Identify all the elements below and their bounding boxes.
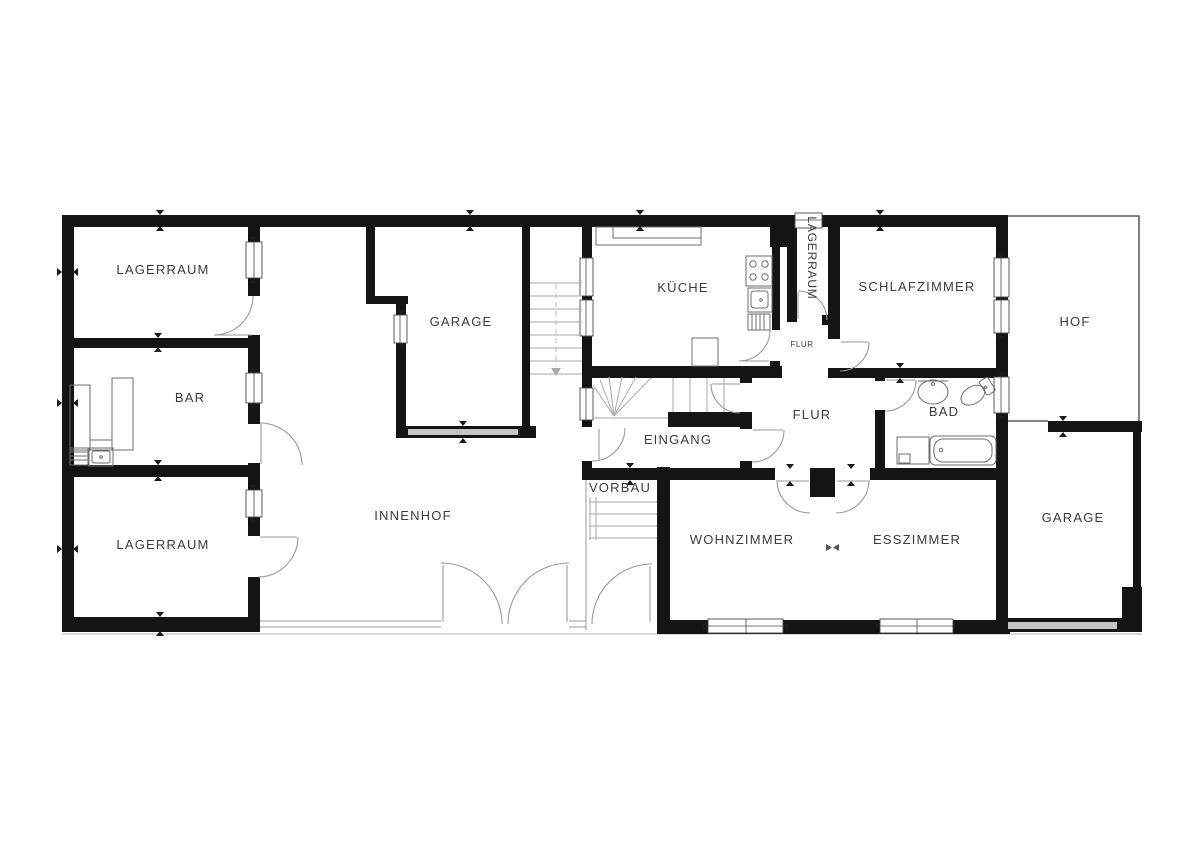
room-label-hof: HOF — [1059, 314, 1090, 329]
dimension-tick-icon — [459, 421, 467, 426]
kitchen-sink-icon — [748, 288, 772, 312]
dimension-tick-icon — [154, 333, 162, 338]
stairs — [530, 283, 724, 540]
toilet-icon — [957, 376, 996, 409]
floor-plan-page: LAGERRAUM BAR LAGERRAUM INNENHOF GARAGE … — [0, 0, 1200, 848]
dimension-tick-icon — [57, 268, 62, 276]
room-label-lagerraum-side: LAGERRAUM — [805, 216, 819, 299]
dimension-tick-icon — [466, 210, 474, 215]
dimension-tick-icon — [1059, 432, 1067, 437]
dimension-tick-icon — [156, 612, 164, 617]
room-divider-marker-icon — [826, 544, 839, 551]
washbasin-icon — [918, 380, 948, 404]
stove-icon — [746, 256, 772, 286]
room-label-innenhof: INNENHOF — [374, 508, 452, 523]
dimension-tick-icon — [847, 464, 855, 469]
bar-counter — [70, 378, 133, 450]
room-label-bar: BAR — [175, 390, 205, 405]
dimension-tick-icon — [847, 481, 855, 486]
garage-bottom-door — [1008, 622, 1117, 629]
garage-doors — [408, 429, 1117, 629]
room-label-eingang: EINGANG — [644, 432, 712, 447]
garage-top-door — [408, 429, 518, 435]
room-label-bad: BAD — [929, 404, 959, 419]
room-label-lagerraum-top: LAGERRAUM — [116, 262, 209, 277]
dimension-tick-icon — [786, 464, 794, 469]
dimension-tick-icon — [876, 210, 884, 215]
room-label-garage-top: GARAGE — [430, 314, 493, 329]
dimension-tick-icon — [626, 463, 634, 468]
room-label-lagerraum-bottom: LAGERRAUM — [116, 537, 209, 552]
room-label-wohnzimmer: WOHNZIMMER — [690, 532, 794, 547]
kitchen-counter — [596, 227, 701, 245]
stair-arrow-icon — [551, 368, 561, 376]
bathtub-icon — [930, 436, 996, 465]
dimension-tick-icon — [1059, 416, 1067, 421]
stairs-vorbau — [589, 497, 657, 540]
stairs-winder — [592, 377, 724, 418]
kitchen-appliance — [748, 314, 770, 330]
room-label-flur-small: FLUR — [790, 340, 813, 349]
room-label-kueche: KÜCHE — [657, 280, 709, 295]
dimension-tick-icon — [896, 363, 904, 368]
dimension-tick-icon — [57, 399, 62, 407]
shower-tray — [897, 437, 929, 464]
windows — [246, 213, 1009, 633]
dimension-tick-icon — [156, 210, 164, 215]
room-label-flur: FLUR — [793, 407, 832, 422]
walls — [62, 215, 1142, 634]
room-label-vorbau: VORBAU — [589, 480, 651, 495]
floor-plan: LAGERRAUM BAR LAGERRAUM INNENHOF GARAGE … — [0, 0, 1200, 848]
room-label-schlafzimmer: SCHLAFZIMMER — [859, 279, 976, 294]
stairs-upper — [530, 283, 582, 376]
dimension-tick-icon — [786, 481, 794, 486]
dimension-tick-icon — [57, 545, 62, 553]
dimension-tick-icon — [154, 460, 162, 465]
bar-sink-icon — [70, 448, 113, 466]
outdoor-outlines — [62, 216, 1142, 634]
dimension-tick-icon — [459, 438, 467, 443]
kitchen-cabinet — [692, 338, 718, 366]
room-label-esszimmer: ESSZIMMER — [873, 532, 961, 547]
room-label-garage-bottom: GARAGE — [1042, 510, 1105, 525]
dimension-tick-icon — [636, 210, 644, 215]
